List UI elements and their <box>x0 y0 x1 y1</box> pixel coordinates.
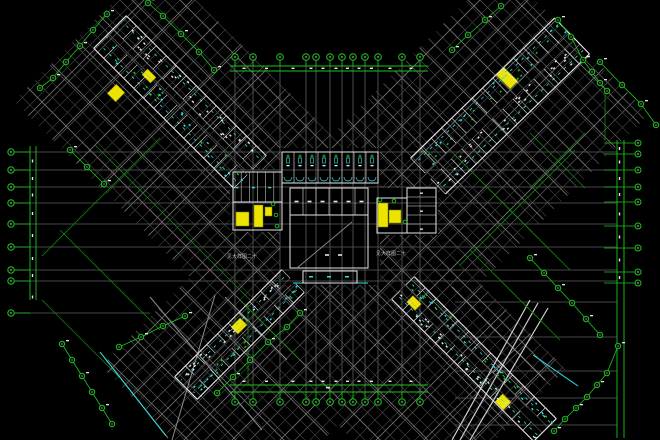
core-highlight-block <box>407 296 422 311</box>
core-highlight-block <box>378 203 388 227</box>
cad-drawing-viewport: 见大样图二十 见大样图二十 <box>0 0 660 440</box>
wing-band <box>94 16 267 189</box>
core-highlight-block <box>254 205 263 227</box>
core-highlight-block <box>236 212 249 226</box>
diagonal-grid-chain <box>527 254 602 338</box>
floor-plan-drawing <box>0 0 660 440</box>
core-highlight-block <box>265 207 272 216</box>
detail-note-left: 见大样图二十 <box>227 255 257 260</box>
core-highlight-block <box>389 210 401 223</box>
diagonal-grid-chain <box>59 340 114 427</box>
detail-note-right: 见大样图二十 <box>376 252 406 257</box>
diagonal-grid-chain <box>551 342 625 434</box>
